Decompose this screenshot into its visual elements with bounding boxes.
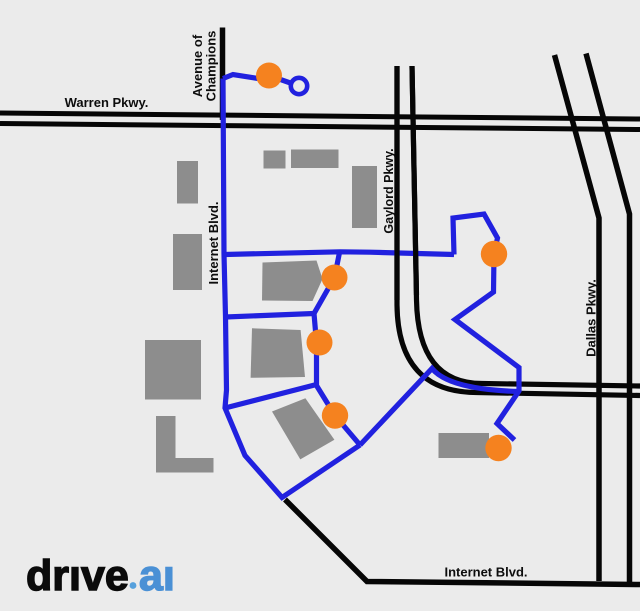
svg-text:Dallas Pkwy.: Dallas Pkwy. (584, 279, 599, 357)
svg-text:Internet Blvd.: Internet Blvd. (444, 565, 527, 580)
svg-text:Champions: Champions (204, 31, 219, 102)
svg-text:drıve: drıve (26, 552, 129, 600)
svg-text:Gaylord Pkwy.: Gaylord Pkwy. (382, 148, 396, 233)
svg-text:Internet Blvd.: Internet Blvd. (206, 201, 221, 284)
svg-text:Warren Pkwy.: Warren Pkwy. (65, 95, 149, 110)
svg-text:aı: aı (139, 552, 175, 600)
